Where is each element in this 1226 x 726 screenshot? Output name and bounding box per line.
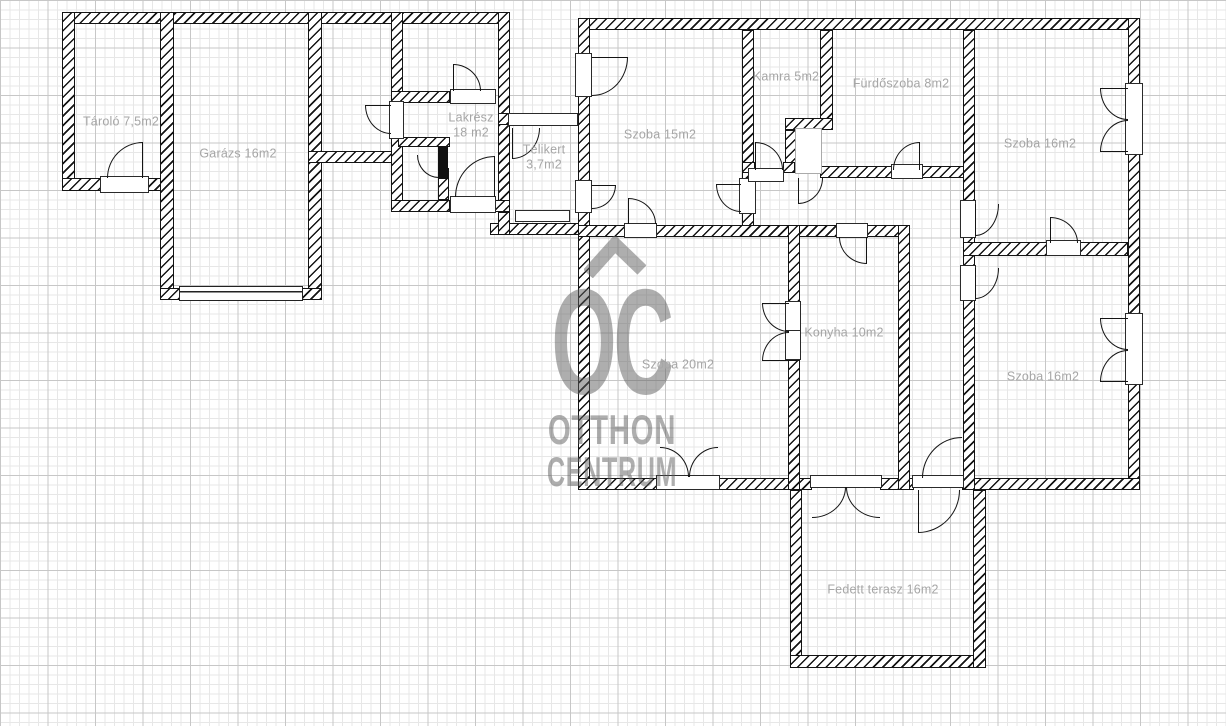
- wall-segment: [973, 490, 986, 668]
- door-swing-arc: [453, 64, 481, 91]
- watermark-brand-line1: OTTHON: [548, 406, 676, 454]
- door-window-sill: [515, 210, 570, 222]
- door-window-sill: [624, 223, 657, 238]
- door-swing-arc: [846, 487, 880, 518]
- wall-segment: [783, 162, 795, 173]
- door-swing-arc: [1100, 88, 1128, 120]
- room-label-tarolo: Tároló 7,5m2: [83, 115, 159, 130]
- watermark-roof-icon: [584, 236, 646, 278]
- door-swing-arc: [365, 105, 391, 134]
- wall-segment: [498, 12, 510, 212]
- door-window-sill: [508, 113, 578, 126]
- room-label-konyha: Konyha 10m2: [804, 326, 883, 341]
- wall-segment: [578, 18, 590, 55]
- wall-segment: [742, 30, 754, 180]
- wall-segment: [391, 200, 450, 212]
- watermark-logo-text: OC: [551, 256, 670, 429]
- door-window-sill: [100, 176, 149, 193]
- wall-segment: [788, 225, 800, 303]
- door-window-sill: [748, 168, 784, 182]
- otthon-centrum-watermark: OC OTTHON CENTRUM: [0, 0, 1226, 726]
- door-swing-arc: [762, 332, 789, 361]
- door-window-sill: [575, 180, 592, 213]
- wall-segment: [578, 18, 1140, 30]
- room-label-szoba16-felso: Szoba 16m2: [1004, 137, 1076, 152]
- wall-segment: [790, 490, 802, 656]
- door-swing-arc: [918, 490, 960, 533]
- door-swing-arc: [689, 447, 718, 477]
- door-swing-arc: [628, 198, 656, 224]
- wall-segment: [578, 478, 658, 490]
- wall-segment: [578, 212, 590, 490]
- wall-segment: [1128, 383, 1140, 490]
- door-swing-arc: [975, 204, 999, 236]
- wall-segment: [578, 96, 590, 182]
- closet-door-panel: [438, 146, 448, 179]
- door-swing-arc: [107, 142, 143, 178]
- room-label-szoba20: Szoba 20m2: [642, 358, 714, 373]
- wall-segment: [578, 225, 626, 237]
- wall-segment: [963, 300, 975, 490]
- door-swing-arc: [592, 57, 628, 96]
- door-window-sill: [389, 101, 404, 139]
- wall-segment: [790, 655, 986, 668]
- room-label-lakresz: Lakrész 18 m2: [448, 110, 493, 140]
- door-window-sill: [739, 178, 756, 214]
- room-label-fedett-terasz: Fedett terasz 16m2: [827, 583, 938, 598]
- door-swing-arc: [922, 437, 962, 478]
- wall-segment: [788, 360, 800, 490]
- wall-segment: [1128, 18, 1140, 85]
- door-swing-arc: [1100, 350, 1128, 382]
- room-label-szoba15: Szoba 15m2: [624, 128, 696, 143]
- door-swing-arc: [455, 156, 495, 197]
- door-window-sill: [960, 265, 976, 301]
- wall-segment: [1080, 242, 1128, 256]
- wall-segment: [962, 478, 1140, 490]
- door-swing-arc: [716, 184, 741, 212]
- floorplan-canvas: OC OTTHON CENTRUM Tároló 7,5m2 Garázs 16…: [0, 0, 1226, 726]
- door-swing-arc: [1100, 120, 1128, 152]
- door-window-sill: [960, 200, 976, 238]
- room-label-szoba16-also: Szoba 16m2: [1007, 370, 1079, 385]
- door-swing-arc: [1050, 217, 1078, 243]
- door-swing-arc: [839, 237, 867, 264]
- door-swing-arc: [417, 155, 439, 178]
- door-swing-arc: [762, 303, 789, 332]
- wall-segment: [391, 12, 403, 103]
- wall-segment: [898, 225, 910, 490]
- door-swing-arc: [798, 178, 823, 204]
- door-window-sill: [575, 53, 592, 97]
- built-in-niche: [795, 128, 822, 174]
- door-window-sill: [450, 89, 496, 104]
- wall-segment: [820, 30, 833, 125]
- door-swing-arc: [592, 185, 616, 209]
- door-swing-arc: [755, 142, 783, 170]
- room-label-garazs: Garázs 16m2: [199, 147, 276, 162]
- wall-segment: [963, 30, 975, 202]
- door-swing-arc: [893, 142, 920, 170]
- door-swing-arc: [1100, 318, 1128, 350]
- wall-segment: [308, 151, 403, 163]
- garage-door: [179, 286, 303, 301]
- door-window-sill: [836, 223, 868, 238]
- wall-segment: [62, 12, 75, 191]
- wall-segment: [62, 12, 510, 24]
- door-swing-arc: [812, 487, 846, 518]
- door-swing-arc: [660, 447, 689, 477]
- wall-segment: [160, 12, 174, 300]
- wall-segment: [820, 166, 893, 178]
- room-label-telikert: Télikert 3,7m2: [523, 142, 566, 172]
- room-label-kamra: Kamra 5m2: [753, 70, 819, 85]
- wall-segment: [1128, 153, 1140, 315]
- door-window-sill: [450, 196, 496, 213]
- door-window-sill: [656, 475, 720, 490]
- wall-segment: [495, 200, 510, 212]
- door-swing-arc: [975, 268, 999, 299]
- room-label-furdoszoba: Fürdőszoba 8m2: [853, 77, 950, 92]
- wall-segment: [498, 212, 510, 235]
- wall-segment: [963, 242, 1048, 256]
- wall-segment: [656, 225, 838, 237]
